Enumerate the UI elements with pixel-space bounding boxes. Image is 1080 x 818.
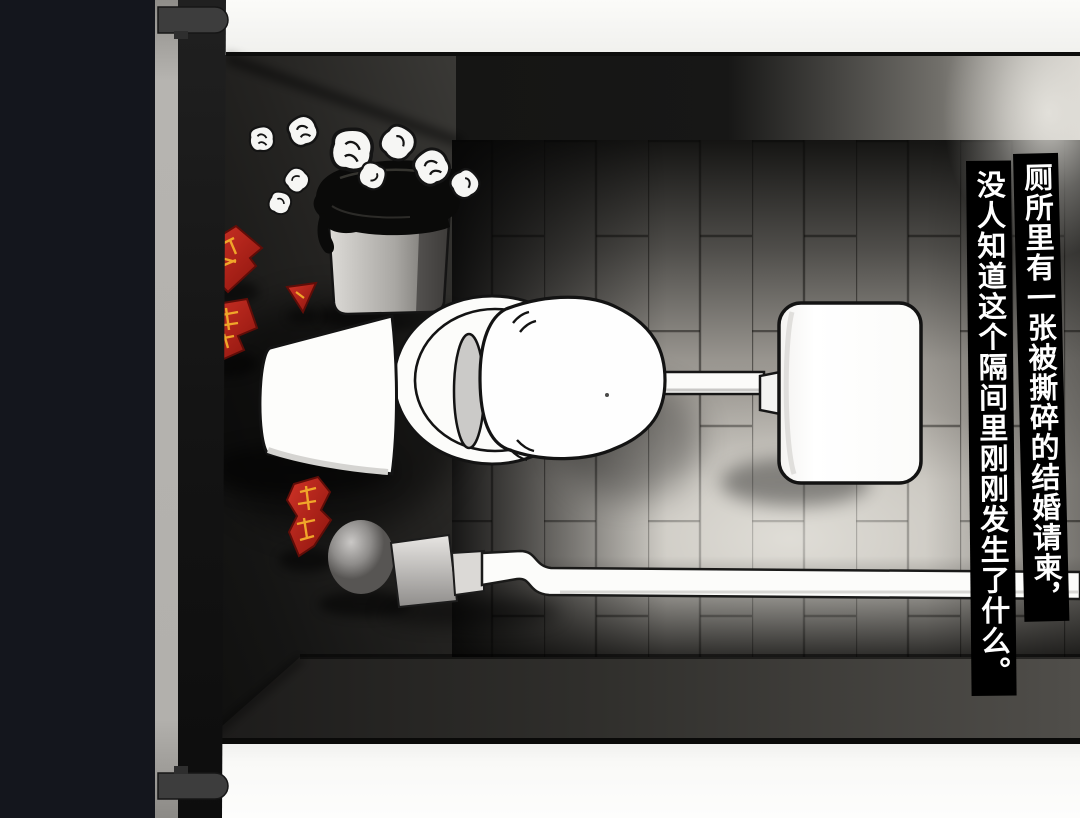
frame-left-bar [0, 0, 155, 818]
mop-collar [391, 535, 457, 607]
floor-strip [204, 657, 1080, 742]
bowl-speck [605, 393, 609, 397]
caption-strip-2: 没人知道这个隔间里刚刚发生了什么。 [966, 161, 1017, 696]
bottom-edge-line [202, 738, 1080, 744]
stall-scene [0, 0, 1080, 818]
partition-strip [155, 0, 178, 818]
door-edge [178, 0, 226, 818]
paper-ball [250, 126, 274, 151]
toilet-bowl [480, 297, 665, 458]
hinge-tab [174, 31, 188, 39]
toilet [260, 296, 921, 483]
bottom-light-band [176, 738, 1080, 818]
top-edge-line [226, 52, 1080, 56]
mop-neck [452, 551, 484, 595]
toilet-tank [779, 303, 921, 483]
hinge-tab [174, 766, 188, 774]
comic-panel: 厕所里有一张被撕碎的结婚请柬， 没人知道这个隔间里刚刚发生了什么。 [0, 0, 1080, 818]
tank-connector [760, 372, 780, 414]
top-light-band [176, 0, 1080, 60]
mop-ball [328, 520, 394, 594]
floor-shadow-line [300, 654, 1080, 659]
